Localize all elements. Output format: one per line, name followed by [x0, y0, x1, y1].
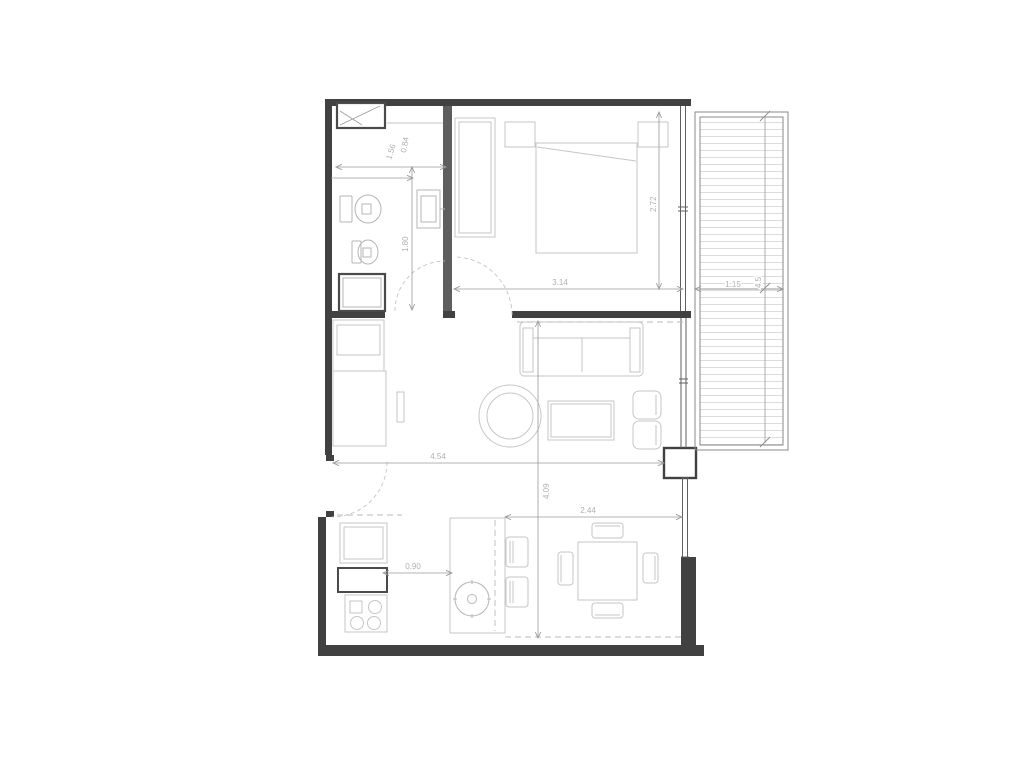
- dining-window: [681, 478, 689, 557]
- kitchen: [337, 515, 528, 633]
- service-shaft: [337, 103, 385, 128]
- side-chair: [397, 392, 404, 422]
- coffee-table: [548, 401, 614, 440]
- wall-pillar: [664, 448, 696, 478]
- dining-chair-right: [643, 553, 658, 583]
- label-balcony-length: 4.5: [754, 276, 763, 288]
- dining-chair-top: [592, 523, 623, 538]
- wardrobe: [455, 118, 495, 237]
- armchair-2: [633, 421, 661, 449]
- wall-bedroom-living: [512, 311, 691, 318]
- bar-stool-2: [506, 577, 528, 607]
- dining-table: [578, 542, 637, 600]
- label-bedroom-depth: 2.72: [649, 196, 658, 212]
- living-room: [333, 320, 686, 449]
- balcony: [695, 112, 788, 450]
- windows: [678, 106, 689, 557]
- dining-chair-left: [558, 552, 573, 585]
- wall-hall-post: [443, 311, 455, 318]
- label-bathroom-depth: 1.80: [401, 236, 410, 252]
- bedroom-balcony-glass: [678, 106, 688, 311]
- wall-right-lower: [681, 557, 696, 645]
- bathroom-door-swing: [395, 261, 445, 311]
- nightstand-left: [505, 122, 535, 147]
- wall-left-lower: [318, 517, 326, 645]
- sofa: [520, 322, 643, 376]
- shower: [339, 274, 385, 311]
- toilet: [340, 195, 381, 223]
- floor-plan-canvas: 1.56 0.84 1.80 3.14 2.72 4.54 4.09 2.44 …: [0, 0, 1024, 768]
- label-living-width: 4.54: [430, 452, 446, 461]
- kitchen-island: [450, 518, 505, 633]
- round-table: [479, 385, 541, 447]
- dining-chair-bottom: [592, 603, 623, 618]
- living-balcony-glass: [679, 318, 688, 448]
- armchair-1: [633, 391, 661, 419]
- double-bed: [536, 143, 637, 253]
- media-cabinet: [333, 320, 386, 446]
- cooktop: [345, 595, 387, 632]
- washbasin: [417, 190, 445, 228]
- label-bathroom-width-2: 0.84: [399, 136, 411, 153]
- nightstand-right: [638, 122, 668, 147]
- entrance-door-swing: [332, 462, 387, 517]
- bidet: [352, 240, 378, 264]
- label-bathroom-width: 1.56: [384, 143, 398, 161]
- bar-stool-1: [506, 537, 528, 567]
- walls: [318, 99, 704, 656]
- label-dining-width: 2.44: [580, 506, 596, 515]
- entrance-jamb-top: [326, 455, 334, 461]
- bedroom: [455, 118, 668, 253]
- wall-bottom: [318, 645, 704, 656]
- bedroom-door-swing: [454, 257, 512, 315]
- label-living-depth: 4.09: [542, 483, 551, 499]
- balcony-decking: [700, 117, 783, 445]
- counter-cabinet: [338, 568, 387, 592]
- dining-area: [505, 523, 683, 637]
- label-island-gap: 0.90: [405, 562, 421, 571]
- fridge: [340, 523, 387, 563]
- label-bedroom-width: 3.14: [552, 278, 568, 287]
- label-balcony-width: 1.15: [725, 280, 741, 289]
- wall-left-upper: [325, 106, 332, 455]
- entrance-jamb-bottom: [326, 511, 334, 517]
